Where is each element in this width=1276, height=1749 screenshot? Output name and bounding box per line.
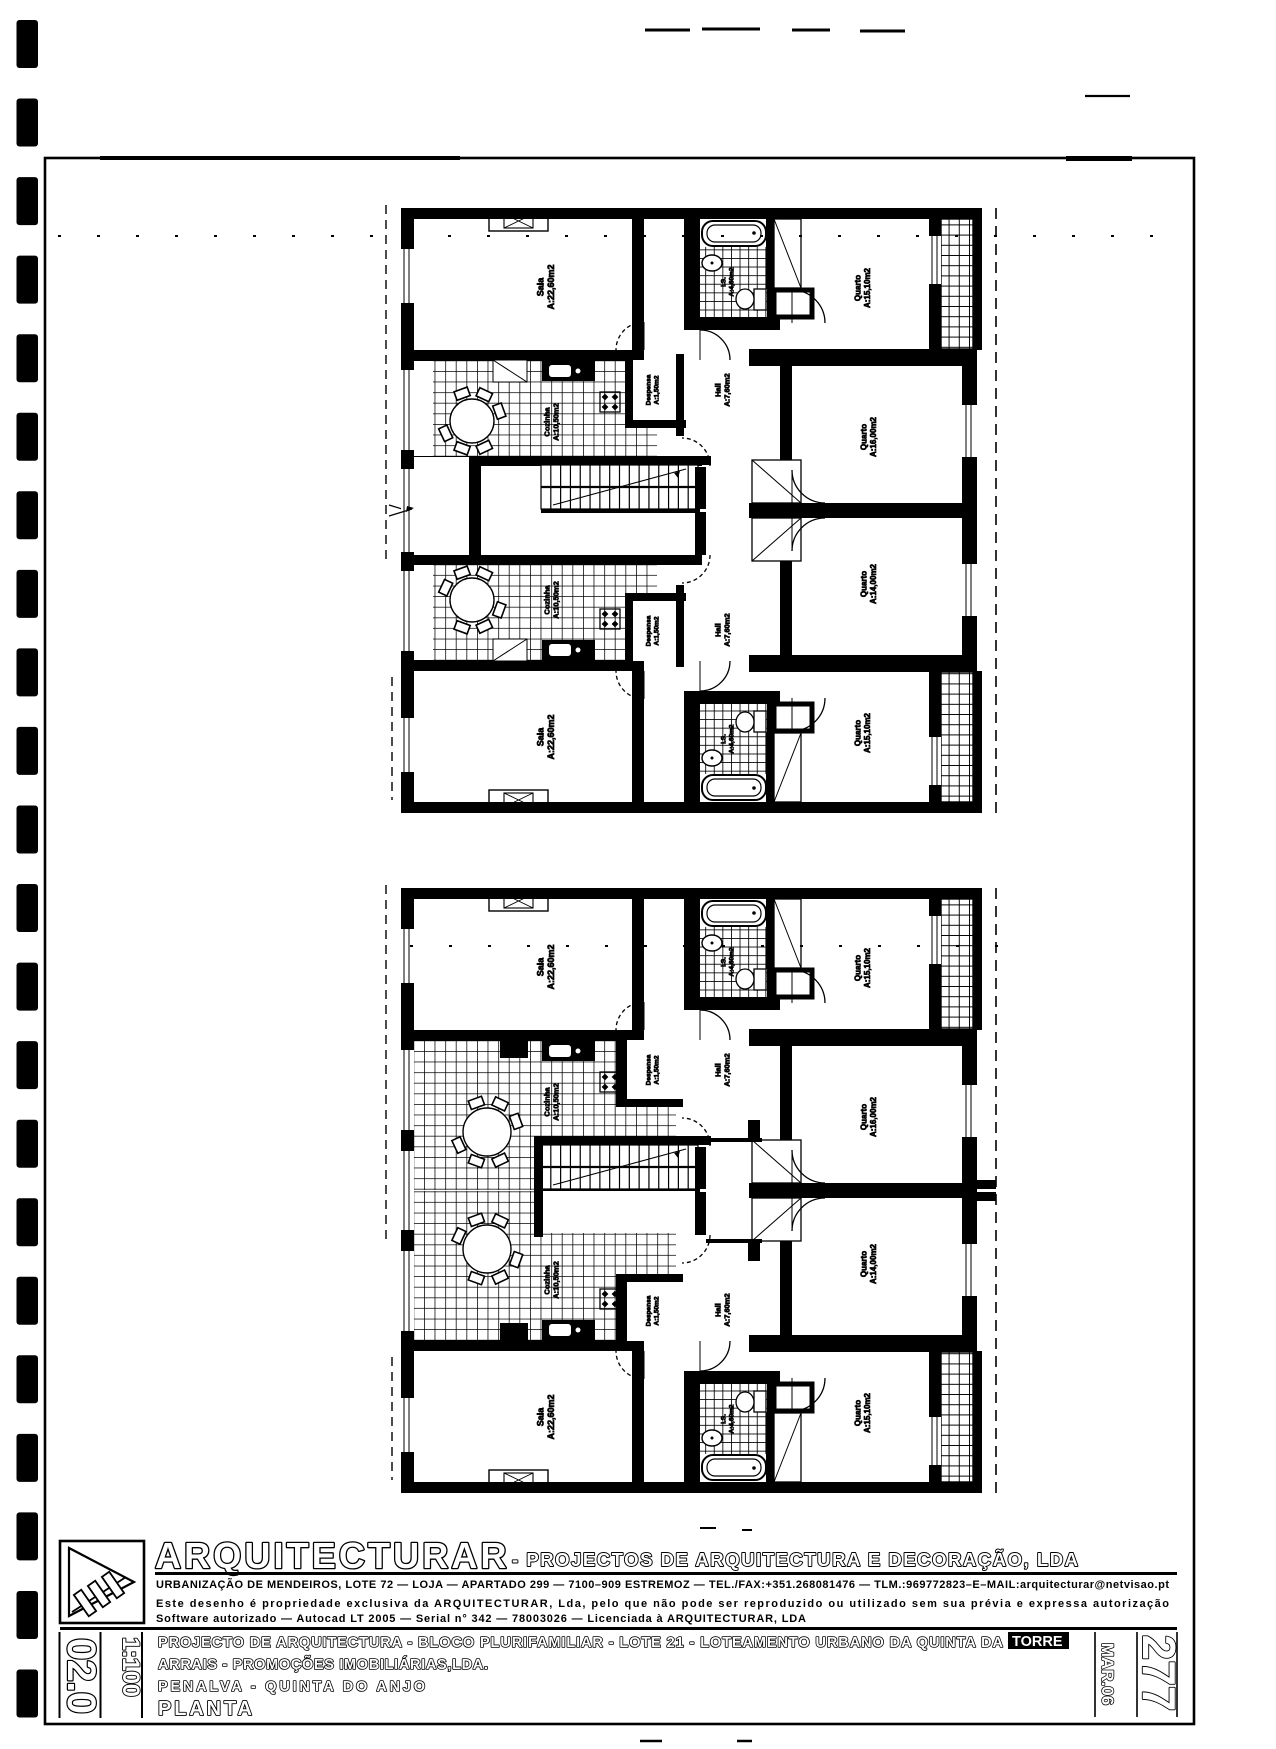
svg-text:DespensaA:1,50m2: DespensaA:1,50m2 xyxy=(646,374,661,405)
svg-text:CozinhaA:10,50m2: CozinhaA:10,50m2 xyxy=(543,403,561,441)
svg-text:ARQUITECTURAR: ARQUITECTURAR xyxy=(155,1535,507,1576)
svg-text:ARRAIS - PROMOÇÕES IMOBILIÁRIA: ARRAIS - PROMOÇÕES IMOBILIÁRIAS,LDA. xyxy=(158,1655,488,1673)
svg-text:TORRE: TORRE xyxy=(1012,1634,1063,1650)
svg-text:Este desenho é propriedade exc: Este desenho é propriedade exclusiva da … xyxy=(156,1598,1169,1610)
svg-text:277: 277 xyxy=(1133,1635,1185,1712)
svg-text:02.0: 02.0 xyxy=(59,1638,103,1714)
svg-text:DespensaA:1,50m2: DespensaA:1,50m2 xyxy=(646,1054,661,1085)
svg-text:DespensaA:1,50m2: DespensaA:1,50m2 xyxy=(646,1295,661,1326)
svg-text:1:100: 1:100 xyxy=(117,1637,144,1697)
svg-text:CozinhaA:10,50m2: CozinhaA:10,50m2 xyxy=(543,581,561,619)
svg-text:PROJECTO DE ARQUITECTURA - BLO: PROJECTO DE ARQUITECTURA - BLOCO PLURIFA… xyxy=(158,1635,1004,1651)
svg-text:MAR.06: MAR.06 xyxy=(1098,1643,1117,1705)
svg-text:CozinhaA:10,50m2: CozinhaA:10,50m2 xyxy=(543,1261,561,1299)
svg-text:CozinhaA:10,50m2: CozinhaA:10,50m2 xyxy=(543,1083,561,1121)
svg-text:Software autorizado — Autocad: Software autorizado — Autocad LT 2005 — … xyxy=(156,1613,806,1625)
svg-text:URBANIZAÇÃO DE MENDEIROS, LOTE: URBANIZAÇÃO DE MENDEIROS, LOTE 72 — LOJA… xyxy=(156,1578,1169,1591)
svg-text:- PROJECTOS DE ARQUITECTURA E: - PROJECTOS DE ARQUITECTURA E DECORAÇÃO,… xyxy=(512,1549,1078,1570)
svg-text:DespensaA:1,50m2: DespensaA:1,50m2 xyxy=(646,615,661,646)
